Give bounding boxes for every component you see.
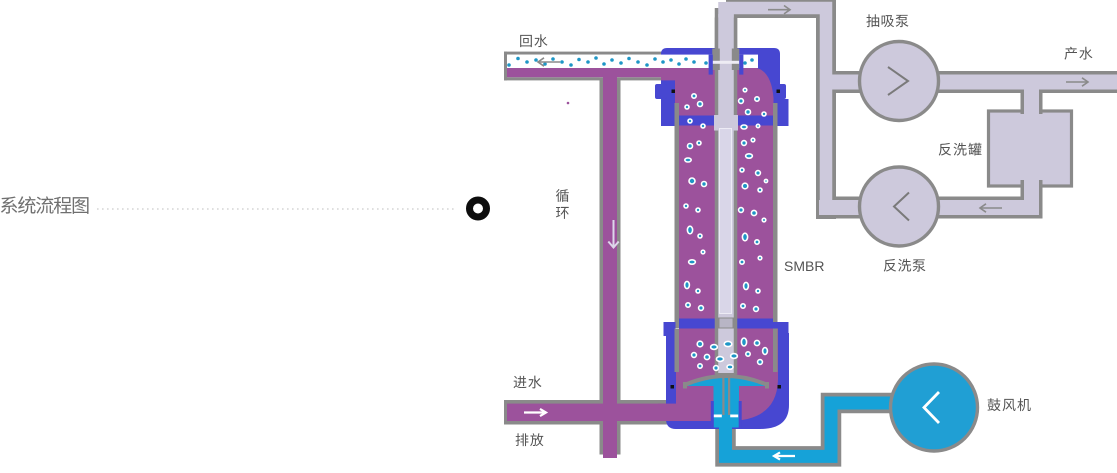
svg-text:SMBR: SMBR: [784, 258, 824, 274]
